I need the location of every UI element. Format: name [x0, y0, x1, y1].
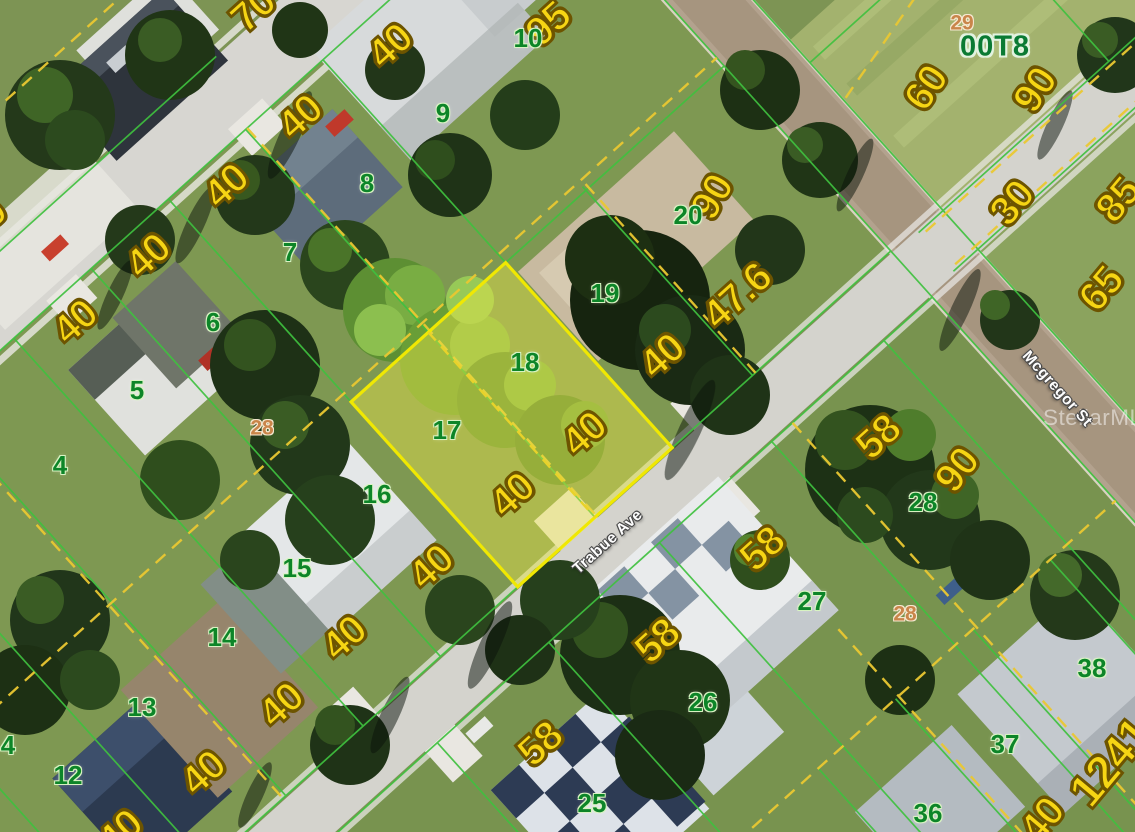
map-labels: StellarMLS 70409540404040404040404040404…	[0, 0, 1135, 832]
lot-number: 28	[909, 489, 938, 515]
lot-number: 36	[914, 800, 943, 826]
lot-number: 19	[591, 280, 620, 306]
lot-number: 4	[1, 732, 15, 758]
dimension-label: 85	[1088, 170, 1135, 230]
lot-number: 37	[991, 731, 1020, 757]
dimension-label: 58	[732, 519, 792, 579]
lot-number: 6	[206, 309, 220, 335]
dimension-label: 40	[270, 87, 330, 147]
dimension-label: 70	[223, 0, 283, 40]
dimension-label: 30	[982, 173, 1041, 233]
dimension-label: 40	[196, 156, 256, 216]
lot-number: 38	[1078, 655, 1107, 681]
dimension-label: 60	[897, 58, 955, 117]
lot-number: 13	[128, 694, 157, 720]
lot-number: 16	[363, 481, 392, 507]
dimension-label: 40	[173, 743, 233, 803]
dimension-label: 40	[0, 190, 14, 250]
dimension-label: 40	[401, 537, 461, 597]
block-number: 28	[250, 418, 273, 439]
dimension-label: 58	[510, 714, 570, 774]
aerial-parcel-map: StellarMLS 70409540404040404040404040404…	[0, 0, 1135, 832]
lot-number: 17	[433, 417, 462, 443]
street-label: Trabue Ave	[570, 507, 645, 577]
lot-number: 26	[689, 689, 718, 715]
lot-number: 18	[511, 349, 540, 375]
dimension-label: 40	[360, 16, 420, 76]
lot-number: 25	[578, 790, 607, 816]
lot-number: 20	[674, 202, 703, 228]
dimension-label: 40	[482, 465, 542, 525]
dimension-label: 58	[627, 611, 687, 671]
lot-number: 12	[54, 762, 83, 788]
dimension-label: 40	[90, 802, 150, 832]
dimension-label: 40	[632, 326, 692, 386]
lot-number: 14	[208, 624, 237, 650]
dimension-label: 40	[1012, 790, 1071, 832]
dimension-label: 65	[1071, 259, 1130, 319]
dimension-label: 58	[848, 407, 908, 467]
dimension-label: 47.6	[695, 255, 779, 336]
lot-number: 8	[360, 170, 374, 196]
lot-number: 5	[130, 377, 144, 403]
lot-number: 10	[514, 25, 543, 51]
dimension-label: 40	[554, 404, 614, 464]
lot-number: 15	[283, 555, 312, 581]
lot-number: 9	[436, 100, 450, 126]
subdivision-label: 00T8	[960, 33, 1030, 62]
dimension-label: 1241	[1061, 710, 1135, 815]
block-number: 28	[893, 604, 916, 625]
dimension-label: 40	[251, 675, 311, 735]
dimension-label: 40	[314, 608, 374, 668]
lot-number: 4	[53, 452, 67, 478]
lot-number: 7	[283, 239, 297, 265]
dimension-label: 90	[1006, 60, 1064, 119]
dimension-label: 40	[118, 226, 178, 286]
dimension-label: 40	[45, 292, 105, 352]
lot-number: 27	[798, 588, 827, 614]
